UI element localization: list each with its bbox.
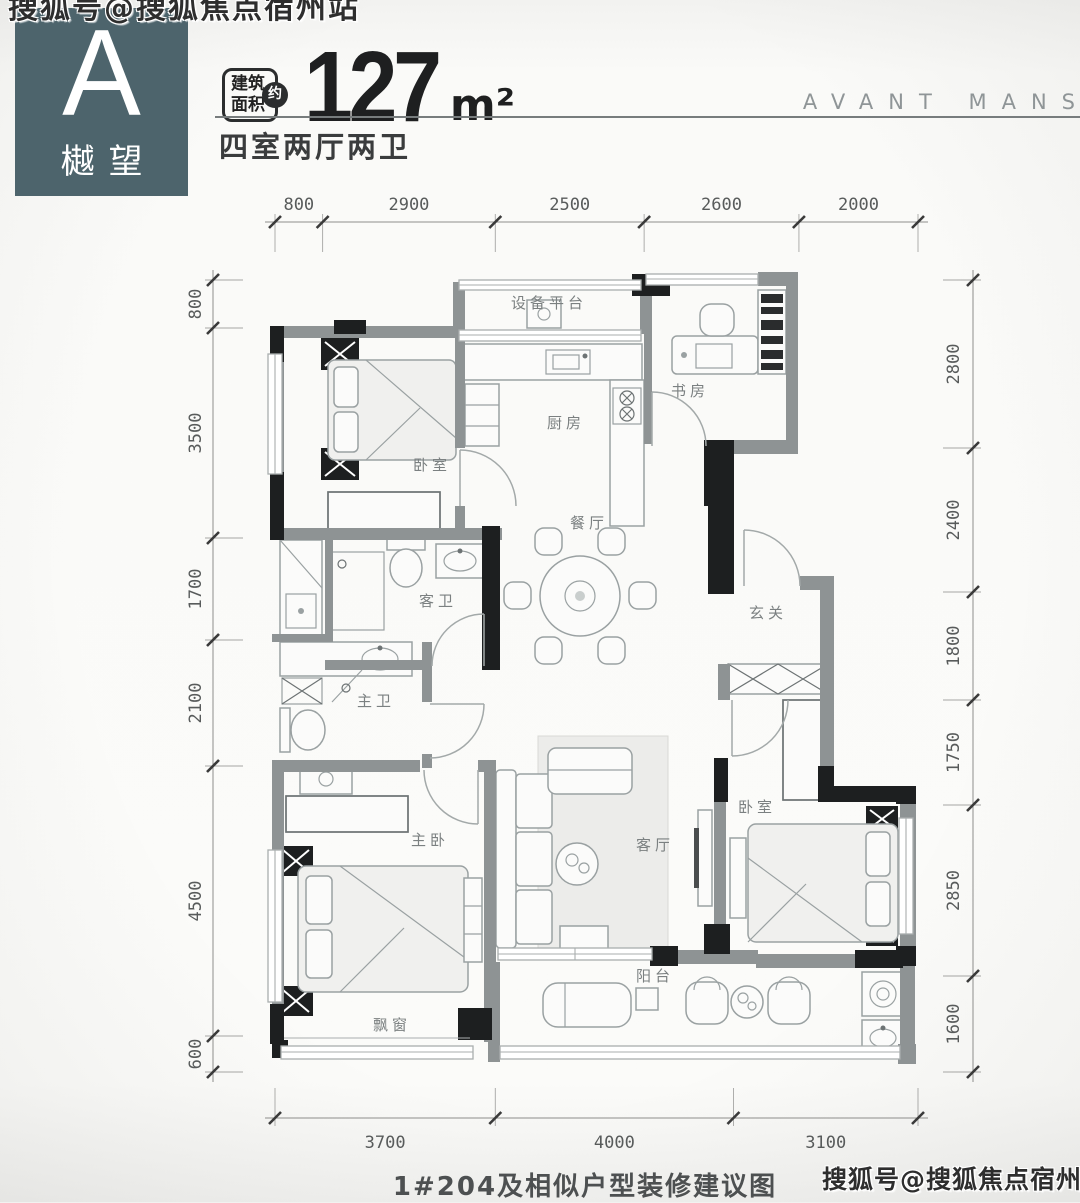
svg-text:3500: 3500 — [186, 413, 206, 454]
wardrobe-east — [783, 700, 821, 800]
room-label-kitchen: 厨房 — [547, 414, 585, 432]
door-study — [652, 392, 706, 446]
door-guest-bath — [432, 614, 484, 666]
room-label-balcony: 阳台 — [636, 967, 674, 985]
balcony-furniture — [543, 972, 904, 1056]
window-bedroom-east — [899, 818, 913, 934]
kitchen-counter — [462, 344, 644, 526]
svg-text:2400: 2400 — [944, 500, 964, 541]
dim-chain-right: 280024001800175028501600 — [943, 270, 981, 1082]
svg-text:3100: 3100 — [805, 1133, 846, 1153]
svg-text:800: 800 — [283, 195, 314, 215]
svg-text:2850: 2850 — [944, 870, 964, 911]
watermark-top-left: 搜狐号@搜狐焦点宿州站 — [8, 0, 360, 27]
svg-text:2900: 2900 — [388, 195, 429, 215]
shoe-cabinet — [728, 664, 828, 694]
window-bedroom-north — [268, 354, 282, 474]
room-label-dining: 餐厅 — [570, 514, 608, 532]
room-label-master-bedroom: 主卧 — [411, 831, 449, 849]
room-label-living: 客厅 — [636, 836, 674, 854]
window-master-left — [268, 850, 282, 1002]
window-study — [646, 274, 758, 285]
window-platform — [459, 280, 641, 290]
room-label-master-bath: 主卫 — [357, 692, 395, 710]
guest-bath-fixtures — [330, 538, 484, 630]
svg-text:2500: 2500 — [549, 195, 590, 215]
svg-text:2100: 2100 — [186, 683, 206, 724]
dim-chain-left: 8003500170021004500600 — [186, 270, 243, 1082]
svg-text:1700: 1700 — [186, 569, 206, 610]
bookshelf — [758, 290, 786, 374]
svg-text:4000: 4000 — [594, 1133, 635, 1153]
watermark-bottom-right: 搜狐号@搜狐焦点宿州站 — [822, 1160, 1080, 1196]
wardrobe-master — [286, 796, 408, 832]
floor-plan-canvas: 设备平台卧室厨房书房餐厅玄关客卫主卫主卧客厅卧室阳台飘窗 80029002500… — [0, 0, 1080, 1202]
svg-text:800: 800 — [186, 289, 206, 320]
bed-east — [730, 806, 898, 946]
svg-text:1750: 1750 — [944, 732, 964, 773]
door-bedroom-north — [460, 450, 516, 506]
svg-text:2000: 2000 — [838, 195, 879, 215]
window-bay — [281, 1038, 473, 1059]
room-label-guest-bath: 客卫 — [419, 592, 457, 610]
room-label-equipment-platform: 设备平台 — [511, 294, 587, 312]
svg-text:3700: 3700 — [365, 1133, 406, 1153]
svg-text:4500: 4500 — [186, 881, 206, 922]
door-master-bath — [430, 704, 484, 758]
storage-nook — [280, 540, 322, 636]
dim-chain-top: 8002900250026002000 — [265, 195, 928, 252]
furniture-layer — [279, 290, 904, 1056]
room-label-bay-window: 飘窗 — [373, 1016, 411, 1034]
living-furniture — [496, 736, 712, 954]
dim-chain-bottom: 370040003100 — [265, 1088, 928, 1153]
door-master-bedroom — [424, 770, 478, 824]
room-label-bedroom-north: 卧室 — [413, 456, 451, 474]
door-bedroom-east — [732, 700, 788, 756]
plan-caption: 1#204及相似户型装修建议图 — [393, 1166, 777, 1203]
sliding-door-balcony — [498, 948, 652, 960]
dining-table — [504, 528, 656, 664]
svg-text:600: 600 — [186, 1039, 206, 1070]
room-label-bedroom-east: 卧室 — [738, 798, 776, 816]
svg-text:2800: 2800 — [944, 344, 964, 385]
svg-text:1800: 1800 — [944, 626, 964, 667]
wardrobe-north — [328, 492, 440, 534]
study-desk — [672, 304, 758, 374]
window-kitchen — [459, 330, 641, 341]
svg-text:2600: 2600 — [701, 195, 742, 215]
window-balcony-south — [500, 1046, 900, 1059]
room-label-foyer: 玄关 — [749, 604, 787, 622]
svg-text:1600: 1600 — [944, 1004, 964, 1045]
room-label-study: 书房 — [671, 382, 709, 400]
door-entry — [744, 530, 800, 586]
